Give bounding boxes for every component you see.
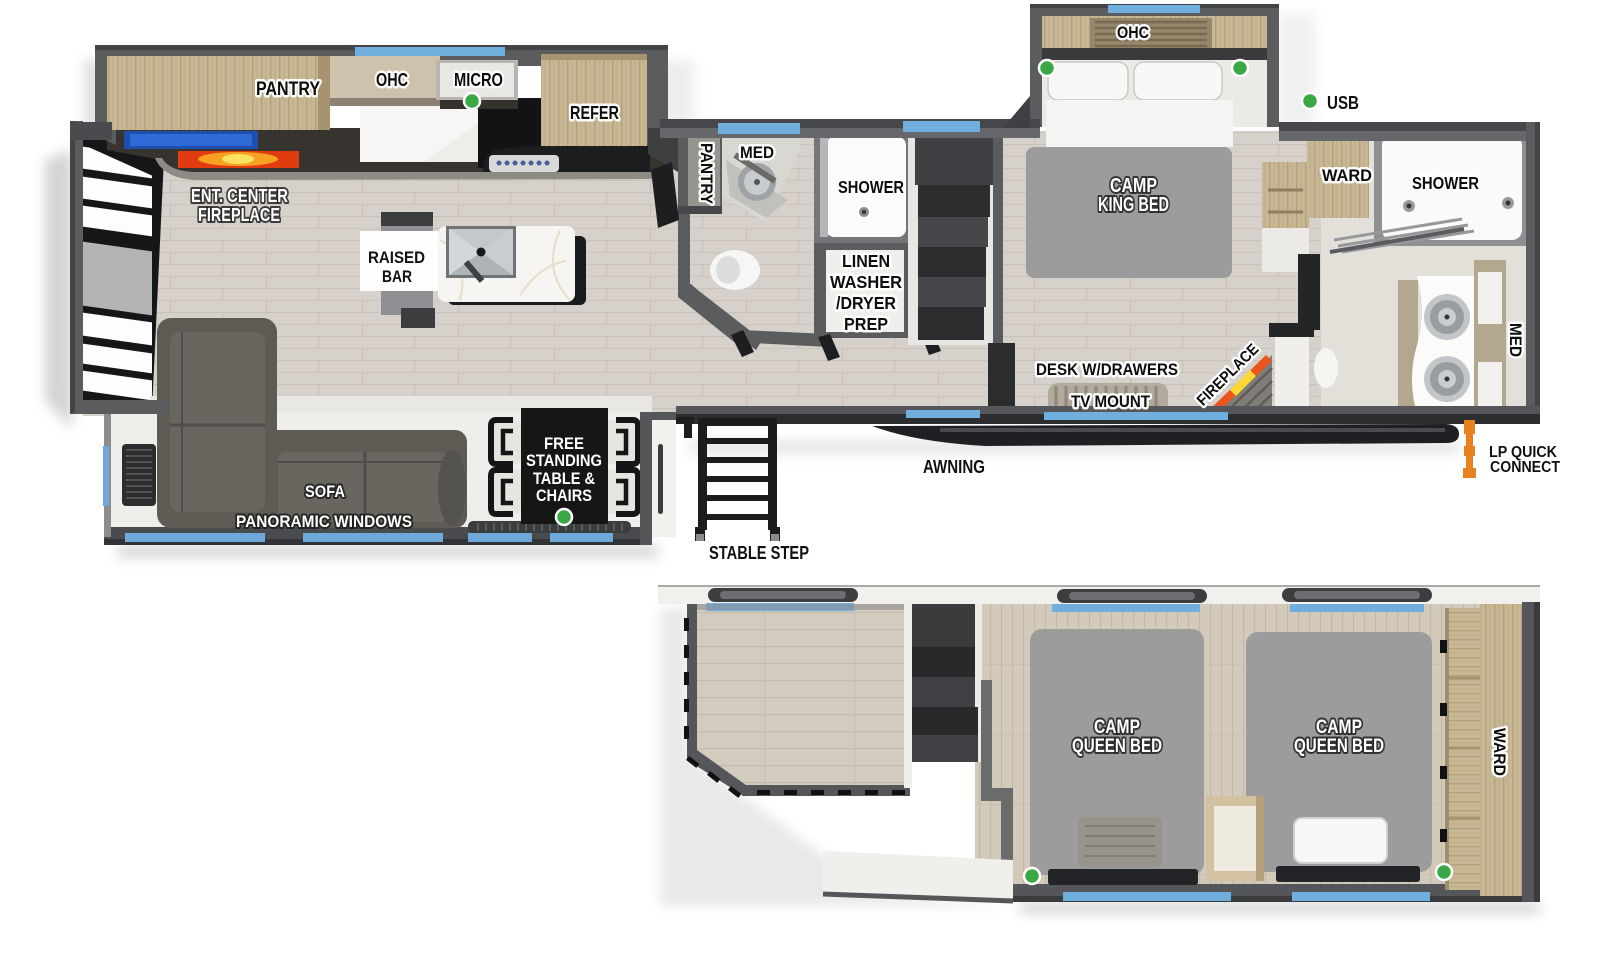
svg-text:CONNECT: CONNECT <box>1490 459 1560 476</box>
svg-text:MED: MED <box>1506 323 1525 357</box>
svg-text:QUEEN BED: QUEEN BED <box>1294 735 1384 757</box>
svg-text:SHOWER: SHOWER <box>1412 173 1479 193</box>
svg-text:QUEEN BED: QUEEN BED <box>1072 735 1162 757</box>
svg-text:STABLE STEP: STABLE STEP <box>709 543 809 563</box>
svg-text:OHC: OHC <box>376 70 408 90</box>
svg-text:FREE: FREE <box>544 435 584 453</box>
svg-text:DESK W/DRAWERS: DESK W/DRAWERS <box>1036 361 1178 379</box>
svg-text:SOFA: SOFA <box>305 482 345 501</box>
svg-text:USB: USB <box>1327 93 1359 113</box>
svg-text:LINEN: LINEN <box>842 251 890 271</box>
svg-text:STANDING: STANDING <box>526 452 602 470</box>
svg-text:OHC: OHC <box>1117 23 1149 42</box>
svg-text:PREP: PREP <box>844 314 888 334</box>
svg-text:PANORAMIC WINDOWS: PANORAMIC WINDOWS <box>236 512 412 531</box>
svg-text:FIREPLACE: FIREPLACE <box>198 205 280 225</box>
svg-text:MED: MED <box>740 143 774 162</box>
svg-text:CHAIRS: CHAIRS <box>536 487 592 505</box>
svg-text:PANTRY: PANTRY <box>697 143 716 205</box>
svg-text:TABLE &: TABLE & <box>533 470 595 488</box>
svg-text:MICRO: MICRO <box>454 70 503 90</box>
svg-text:PANTRY: PANTRY <box>256 79 320 100</box>
svg-text:REFER: REFER <box>570 103 619 123</box>
svg-text:WARD: WARD <box>1490 728 1509 776</box>
svg-text:/DRYER: /DRYER <box>836 293 896 313</box>
svg-text:RAISED: RAISED <box>368 248 425 267</box>
svg-text:BAR: BAR <box>382 267 412 286</box>
svg-text:TV MOUNT: TV MOUNT <box>1071 393 1150 411</box>
svg-text:SHOWER: SHOWER <box>838 177 904 197</box>
svg-text:AWNING: AWNING <box>923 457 985 477</box>
svg-text:KING BED: KING BED <box>1098 194 1169 216</box>
svg-text:ENT. CENTER: ENT. CENTER <box>191 186 288 206</box>
svg-text:WASHER: WASHER <box>830 272 902 292</box>
svg-text:WARD: WARD <box>1322 166 1372 185</box>
